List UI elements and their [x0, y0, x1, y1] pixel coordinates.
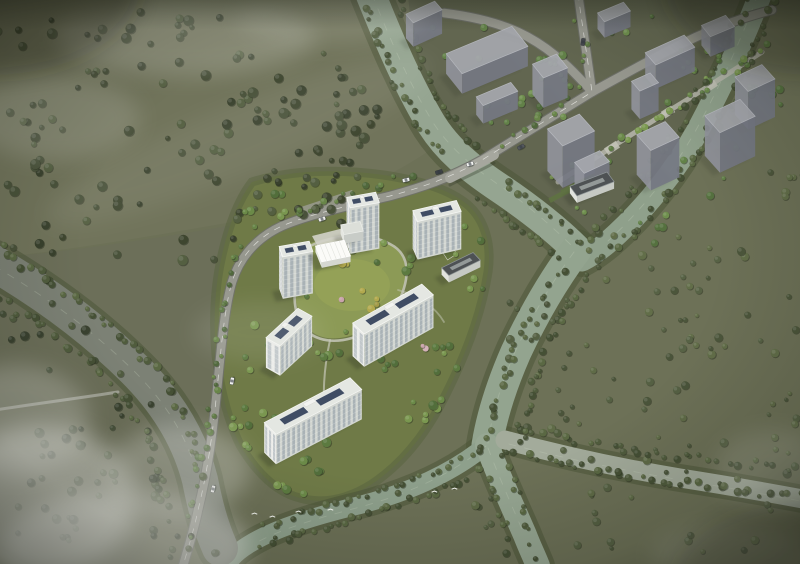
aerial-rendering: Aerial bird's-eye architectural renderin…: [0, 0, 800, 564]
vignette: [0, 0, 800, 564]
